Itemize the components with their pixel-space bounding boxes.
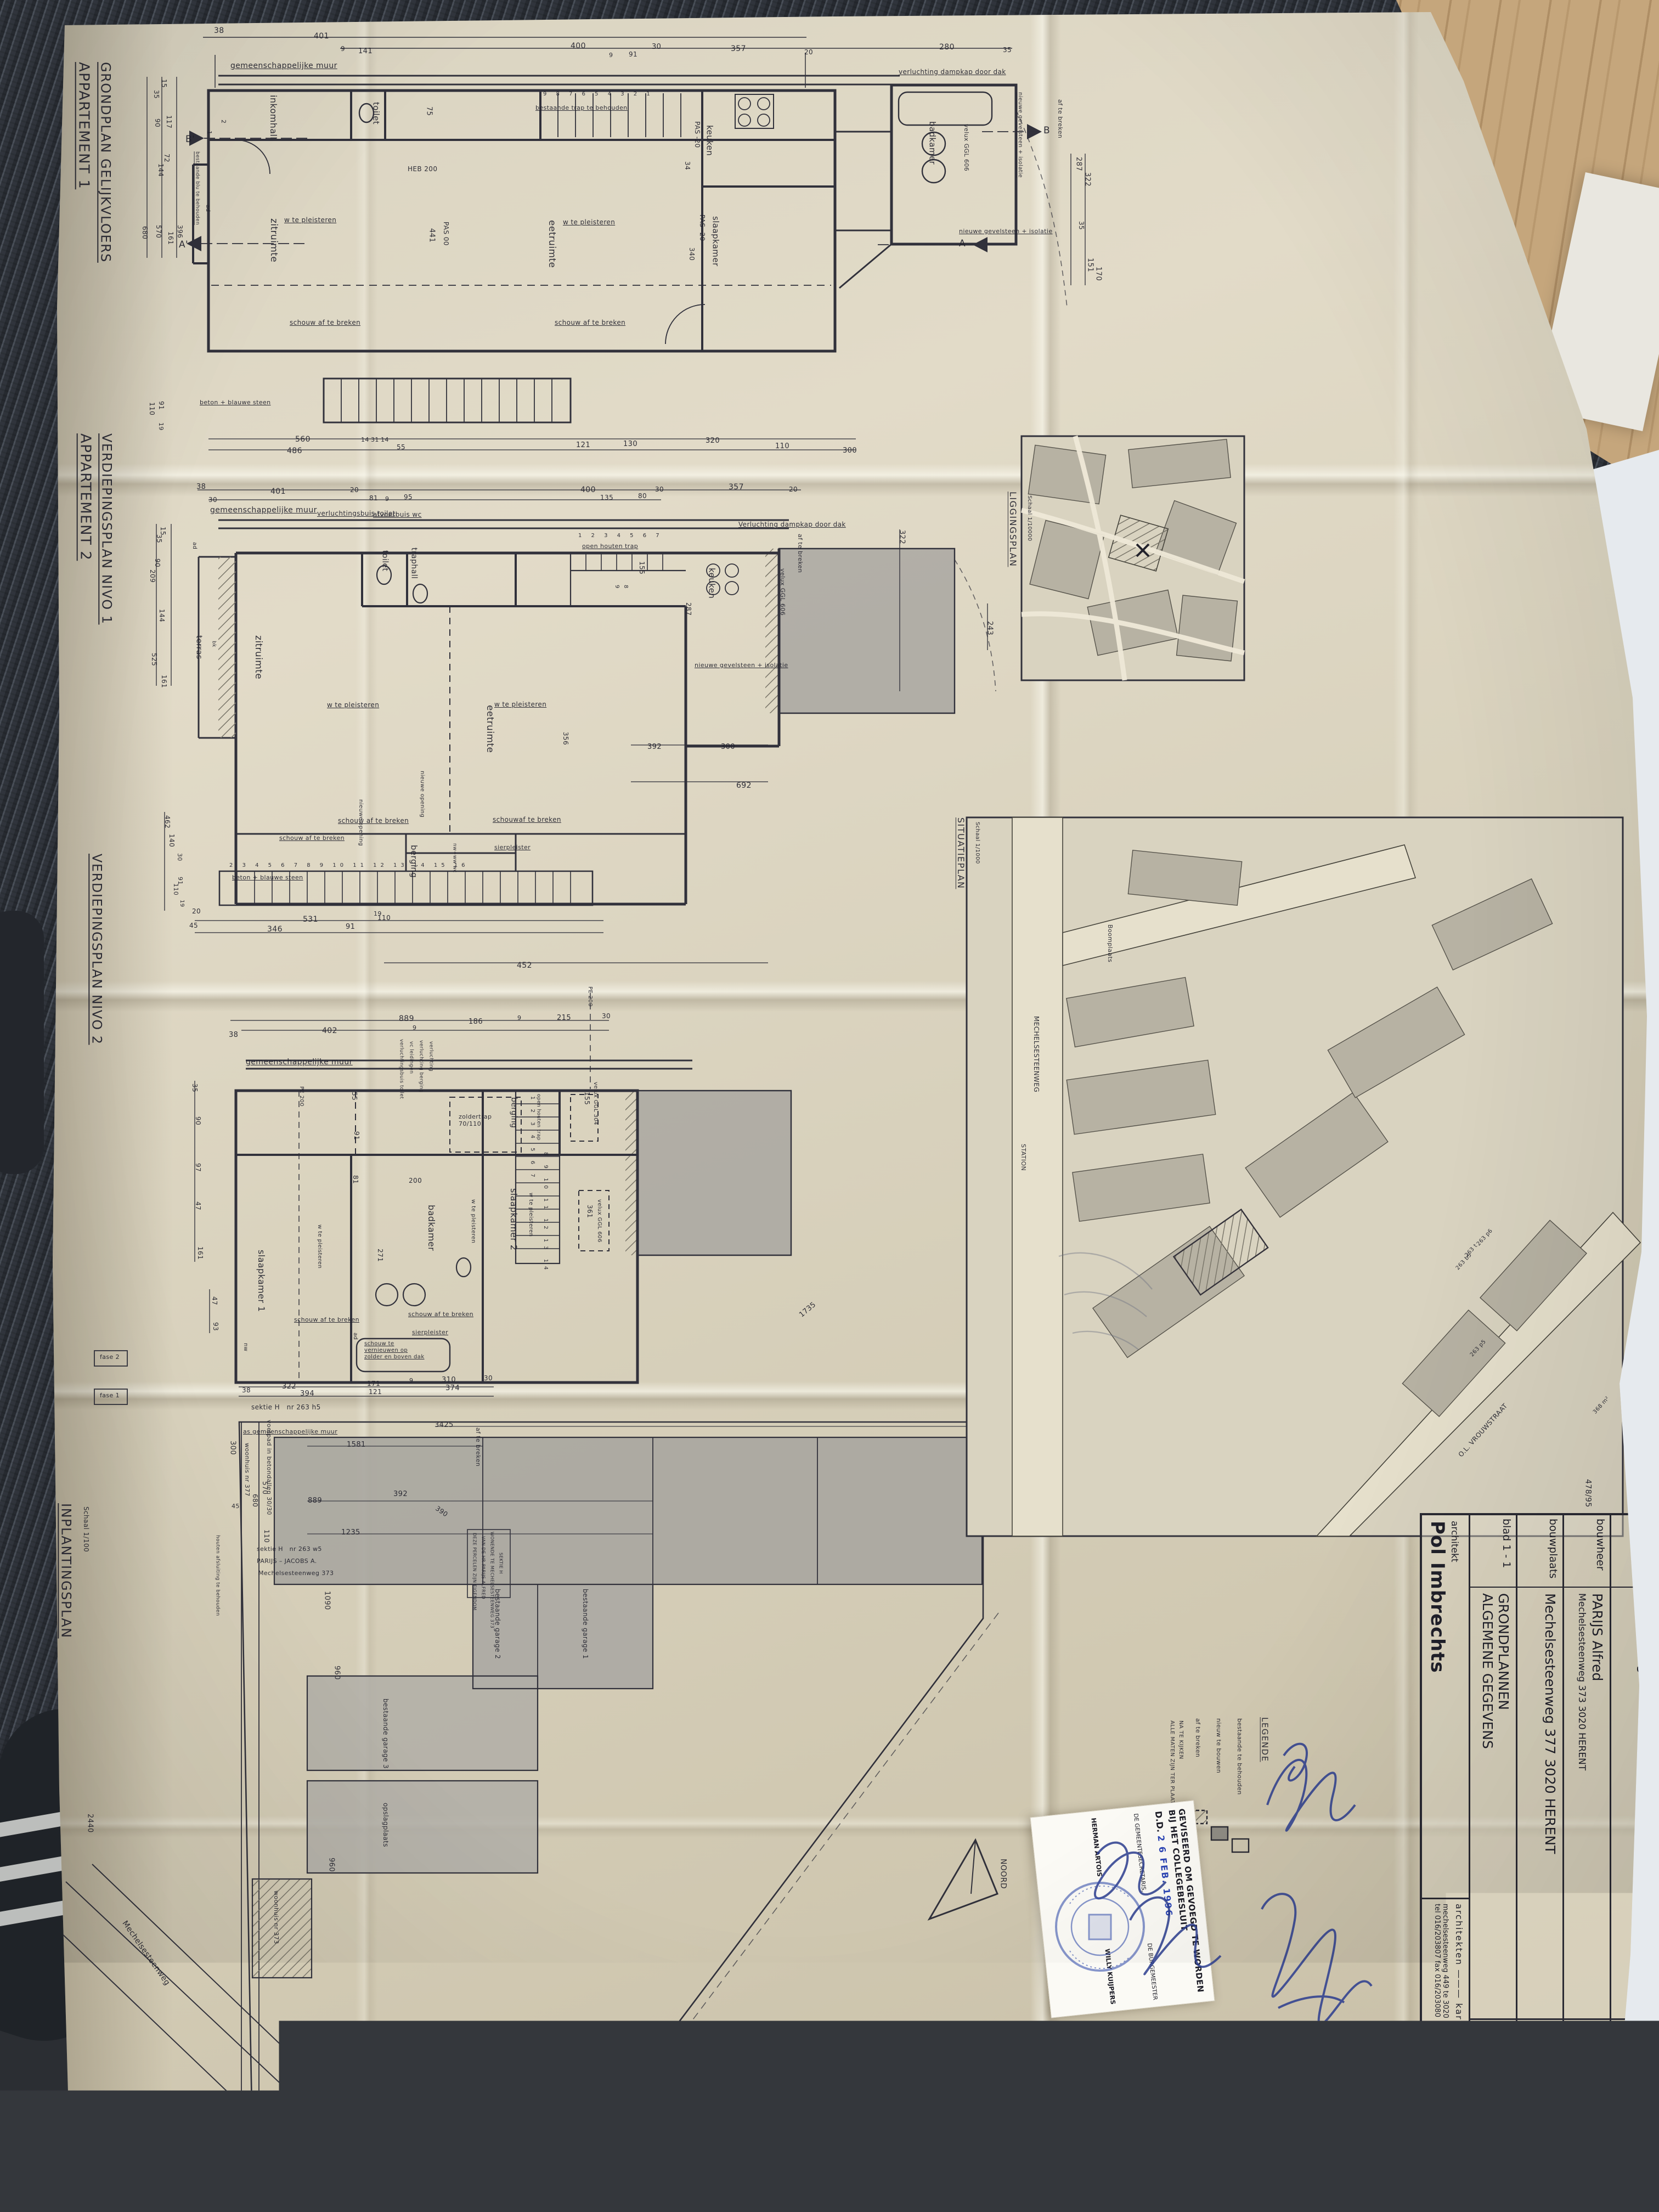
label-wtp1: w te pleisteren	[327, 701, 379, 709]
label-d680: 680	[251, 1494, 259, 1507]
label-wtp2: w te pleisteren	[494, 701, 546, 708]
label-nd2: VAN DE HR PARIJS ALFRED	[481, 1536, 486, 1599]
label-inkomhall: inkomhall	[268, 95, 278, 139]
label-l35: 35	[155, 534, 163, 543]
field-label: bouwheer	[1565, 1515, 1610, 1588]
label-b110: 110	[775, 442, 789, 450]
label-l140: 140	[168, 834, 176, 847]
label-mB1: B'	[185, 134, 195, 145]
stamp-name-kuijpers: WILLY KUIJPERS	[1103, 1948, 1117, 2005]
label-l90: 90	[154, 558, 161, 567]
label-t357: 357	[731, 44, 746, 54]
label-b30: 30	[484, 1374, 493, 1382]
label-l525: 525	[150, 653, 158, 666]
label-b121: 121	[576, 441, 590, 449]
stamp-dd: D.D.	[1153, 1810, 1166, 1832]
label-t357: 357	[729, 483, 744, 492]
label-berging: berging	[509, 1097, 518, 1128]
label-l680: 680	[141, 226, 149, 239]
label-t9a: 9	[385, 496, 389, 503]
label-slaapkamer: slaapkamer	[710, 216, 720, 267]
label-t30b: 30	[655, 486, 664, 493]
bouwheer-name: PARIJS Alfred	[1589, 1593, 1605, 2013]
label-d361: 361	[586, 1205, 594, 1218]
label-t186: 186	[469, 1018, 483, 1026]
brand-karro: karro	[1454, 2003, 1464, 2031]
architect-cell: architekt Pol Imbrechts	[1422, 1515, 1469, 1899]
label-schouw3: schouw af te breken	[279, 835, 345, 842]
label-woon373: woonhuis nr 373	[272, 1891, 279, 1944]
stamp-name-artois: HERMAN ARTOIS	[1090, 1818, 1103, 1877]
label-d1235: 1235	[341, 1528, 360, 1537]
titleblock-row-architekt: architekt Pol Imbrechts architekten ——— …	[1422, 1515, 1469, 2193]
label-d271: 271	[376, 1249, 384, 1262]
label-wtp3: w te pleisteren	[527, 1193, 534, 1237]
label-woon377: woonhuis nr 377	[243, 1443, 250, 1497]
label-scale: Schaal 1/100	[82, 1506, 90, 1552]
label-t9b: 9	[609, 52, 613, 59]
label-aft: af te breken	[796, 534, 803, 573]
label-d287: 287	[685, 602, 692, 616]
label-n1: 1	[205, 131, 212, 134]
label-i2: nieuw te bouwen	[1215, 1718, 1222, 1773]
label-badkamer: badkamer	[927, 121, 937, 165]
architect-office: architekten ——— karro ——— mechelsesteenw…	[1422, 1899, 1469, 2193]
label-pe1: PE 200	[586, 986, 593, 1007]
label-b9: 9	[409, 1378, 413, 1385]
label-s9: 9	[613, 585, 620, 589]
field-value: GRONDPLANNENALGEMENE GEGEVENS	[1470, 1588, 1516, 2020]
label-l462: 462	[163, 815, 171, 828]
field-label: bouwplaats	[1517, 1515, 1563, 1588]
label-ops: opslagplaats	[382, 1803, 390, 1847]
label-vbt: verluchtingsbuis toilet	[398, 1039, 404, 1099]
label-t401: 401	[270, 487, 286, 496]
label-note1: ALLE MATEN ZIJN TER PLAATSE	[1169, 1720, 1175, 1812]
label-title: LIGGINGSPLAN	[1007, 492, 1018, 567]
label-sektieh5: sektie H nr 263 h5	[251, 1403, 321, 1411]
label-t80: 80	[638, 492, 647, 500]
label-l161: 161	[167, 232, 174, 245]
brand-architekten: architekten	[1454, 1904, 1464, 1966]
label-avw: afvoerbuis wc	[373, 511, 422, 518]
label-b130: 130	[623, 440, 637, 448]
label-t20: 20	[804, 48, 813, 56]
stamp-burgemeester-label: DE BURGEMEESTER	[1146, 1943, 1159, 2000]
label-d45: 45	[232, 1503, 240, 1510]
label-bestblu: bestaande blu te behouden	[194, 151, 200, 225]
label-t215: 215	[557, 1014, 571, 1022]
label-t141: 141	[358, 47, 373, 55]
tekenaar-value: PETER	[1547, 2078, 1559, 2113]
label-schouw2: schouwaf te breken	[493, 816, 561, 823]
label-mB2: B	[1043, 125, 1050, 136]
label-beton: beton + blauwe steen	[200, 399, 271, 407]
label-t95: 95	[404, 493, 413, 501]
label-d110: 110	[263, 1530, 270, 1543]
label-d34: 34	[684, 161, 691, 170]
label-l19: 19	[157, 422, 164, 431]
label-l35: 35	[191, 1084, 199, 1092]
label-t401: 401	[314, 32, 329, 41]
label-l93: 93	[212, 1322, 219, 1331]
label-verlucht: verluchting dampkap door dak	[899, 68, 1006, 76]
label-l117: 117	[165, 115, 173, 128]
label-mA2: A	[959, 238, 966, 249]
office-address: mechelsesteenweg 449 te 3020 Herent	[1441, 1904, 1449, 2189]
label-verlucht: Verluchting dampkap door dak	[738, 521, 846, 528]
label-d200: 200	[409, 1177, 422, 1184]
label-l396: 396	[176, 225, 184, 238]
label-b31: 31	[371, 437, 379, 444]
label-schouw1: schouw af te breken	[294, 1317, 359, 1324]
label-pj: PARIJS – JACOBS A.	[257, 1558, 317, 1565]
label-s814: 8 9 10 11 12 13 14	[542, 1152, 549, 1273]
label-n2: 2	[219, 120, 227, 123]
label-t9a: 9	[413, 1025, 416, 1032]
label-zold: zoldertrap 70/110	[459, 1114, 497, 1128]
label-b300: 300	[843, 447, 857, 455]
label-b110: 110	[377, 914, 391, 922]
label-ad: ad	[191, 542, 198, 549]
label-b91: 91	[346, 923, 355, 931]
label-noord: NOORD	[998, 1859, 1008, 1889]
nivo2-drawing	[195, 993, 791, 1396]
label-eetruimte: eetruimte	[484, 705, 495, 753]
label-svern: schouw te vernieuwen op zolder en boven …	[364, 1341, 425, 1360]
stamp-secretaris-label: DE GEMEENTESECRETARIS,	[1132, 1813, 1147, 1892]
label-l47: 47	[194, 1201, 202, 1210]
label-wtp1: w te pleisteren	[316, 1224, 323, 1268]
titleblock-row-blad: blad 1 - 1 GRONDPLANNENALGEMENE GEGEVENS…	[1469, 1515, 1516, 2193]
label-title: INPLANTINGSPLAN	[58, 1503, 74, 1639]
label-l161: 161	[160, 675, 168, 688]
label-muur: gemeenschappelijke muur	[246, 1058, 353, 1067]
label-s17: 1 2 3 4 5 6 7	[578, 533, 663, 539]
label-t280: 280	[939, 43, 955, 52]
label-pencil: 478/95	[1583, 1479, 1593, 1508]
label-b55: 55	[397, 443, 405, 451]
label-nop1: nieuwe opening	[419, 771, 425, 817]
label-t30: 30	[602, 1012, 611, 1020]
label-traphall: traphall	[409, 548, 419, 579]
label-s8: 8	[622, 585, 629, 589]
label-l91: 91	[157, 401, 165, 410]
label-d960a: 960	[332, 1666, 341, 1680]
label-pe2: PE 200	[298, 1086, 304, 1107]
label-schouw2: schouw af te breken	[555, 319, 625, 326]
label-b14b: 14	[381, 437, 389, 444]
label-title: LEGENDE	[1260, 1717, 1269, 1762]
label-t9b: 9	[517, 1015, 521, 1022]
label-t30: 30	[652, 43, 661, 51]
label-t400: 400	[571, 42, 586, 51]
label-b322: 322	[282, 1383, 296, 1391]
nivo1-drawing	[156, 490, 996, 963]
label-b310: 310	[442, 1376, 456, 1384]
label-terras: terras	[194, 635, 204, 659]
datum-label: datum	[1500, 2024, 1511, 2056]
label-l144: 144	[157, 163, 165, 177]
label-muur: gemeenschappelijke muur	[210, 506, 317, 515]
bouwplaats-value: Mechelsesteenweg 377 3020 HERENT	[1517, 1588, 1563, 2020]
label-l15: 15	[160, 79, 168, 88]
label-d441: 441	[427, 228, 436, 242]
label-title: SITUATIEPLAN	[955, 817, 966, 889]
label-r243: 243	[985, 621, 994, 635]
field-value: PARIJS AlfredMechelsesteenweg 373 3020 H…	[1565, 1588, 1610, 2020]
label-l97: 97	[194, 1163, 202, 1172]
label-v606: velux GGL 606	[596, 1199, 602, 1243]
label-houten: houten afsluiting te behouden	[215, 1535, 221, 1616]
label-t889: 889	[399, 1014, 414, 1024]
label-t81: 81	[369, 494, 378, 502]
label-d3425: 3425	[435, 1421, 454, 1429]
label-b38: 38	[242, 1386, 251, 1394]
label-b346: 346	[267, 925, 283, 934]
label-r170: 170	[1094, 267, 1102, 281]
titleblock-row-bouwplaats: bouwplaats Mechelsesteenweg 377 3020 HER…	[1516, 1515, 1563, 2193]
label-aft: af te breken	[474, 1427, 481, 1466]
label-wtp2: w te pleisteren	[470, 1199, 476, 1243]
label-aft: af te breken	[1056, 99, 1063, 138]
photo-scene: APPARTEMENT 1GRONDPLAN GELIJKVLOERSgemee…	[0, 0, 1659, 2212]
label-eetruimte: eetruimte	[546, 220, 557, 268]
label-ad: ad	[352, 1333, 358, 1340]
label-scale: Schaal 1/1000	[974, 822, 980, 864]
label-b452: 452	[517, 961, 532, 970]
label-b394: 394	[300, 1390, 314, 1398]
label-fase1: fase 1	[100, 1392, 120, 1400]
label-mA1: A'	[179, 239, 188, 250]
label-t400: 400	[580, 486, 596, 495]
label-vcl: vc leidingen	[408, 1041, 414, 1074]
label-opentrap: open houten trap	[582, 543, 638, 550]
label-b45: 45	[189, 922, 198, 929]
label-t38: 38	[229, 1031, 238, 1039]
bouwheer-address: Mechelsesteenweg 373 3020 HERENT	[1576, 1593, 1587, 2013]
label-g2: bestaande garage 2	[494, 1589, 501, 1659]
label-m373: Mechelsesteenweg 373	[258, 1570, 334, 1577]
label-r287: 287	[1074, 157, 1082, 171]
plan-linework	[0, 0, 1659, 2212]
label-nw: nw	[242, 1343, 249, 1351]
legend-swatches	[1190, 1810, 1249, 1852]
label-l91: 91	[353, 1131, 360, 1140]
label-berging: berging	[409, 845, 419, 878]
label-asmuur: as gemeenschappelijke muur	[243, 1429, 337, 1436]
label-ngi1: nieuwe gevelsteen + isolatie	[1017, 92, 1023, 178]
office-phone: tel 016/203807 fax 016/203080	[1433, 1904, 1441, 2189]
label-title2: VERDIEPINGSPLAN NIVO 1	[99, 433, 114, 625]
label-sier: sierpleister	[494, 844, 531, 851]
label-d1090: 1090	[323, 1591, 331, 1610]
label-keuken: keuken	[704, 125, 714, 156]
label-zitruimte: zitruimte	[268, 218, 279, 262]
label-r322: 322	[898, 530, 906, 544]
field-label: blad 1 - 1	[1470, 1515, 1516, 1588]
label-l19: 19	[178, 900, 185, 907]
label-muur: gemeenschappelijke muur	[230, 61, 337, 71]
blad-subtitle: ALGEMENE GEGEVENS	[1480, 1593, 1496, 2013]
label-l35: 35	[153, 90, 160, 99]
label-ngi: nieuwe gevelsteen + isolatie	[695, 662, 788, 669]
label-velux: velux GGL 606	[778, 568, 786, 616]
label-i3: af te breken	[1194, 1718, 1201, 1757]
label-d889: 889	[308, 1497, 322, 1505]
label-b531: 531	[303, 915, 318, 924]
label-ngi2: nieuwe gevelsteen + isolatie	[959, 228, 1053, 235]
blad-title: GRONDPLANNEN	[1496, 1593, 1511, 2013]
label-title1: VERDIEPINGSPLAN NIVO 2	[89, 854, 104, 1045]
label-d155: 155	[638, 561, 646, 574]
label-d392: 392	[393, 1490, 408, 1498]
label-title1: APPARTEMENT 1	[75, 62, 92, 189]
label-l47b: 47	[211, 1296, 218, 1305]
label-l30: 30	[176, 853, 183, 861]
label-keuken: keuken	[707, 568, 716, 599]
architect-label: architekt	[1449, 1521, 1460, 1562]
label-l81: 81	[352, 1175, 359, 1184]
label-t402: 402	[322, 1026, 337, 1036]
label-l209: 209	[149, 569, 156, 583]
blueprint-sheet: APPARTEMENT 1GRONDPLAN GELIJKVLOERSgemee…	[0, 0, 1659, 2212]
label-b392: 392	[647, 743, 662, 751]
label-l144: 144	[158, 609, 166, 622]
label-r35: 35	[1077, 221, 1085, 230]
label-zitruimte: zitruimte	[253, 635, 264, 679]
label-b300: 300	[721, 743, 735, 751]
label-slaap2: slaapkamer 2	[508, 1188, 518, 1250]
label-boom: Boomplaats	[1106, 924, 1113, 962]
label-slaap1: slaapkamer 1	[256, 1250, 266, 1312]
label-b14a: 14	[361, 437, 369, 444]
label-s17: 1 2 3 4 5 6 7	[529, 1096, 535, 1181]
label-verl: verluchting	[428, 1041, 434, 1071]
label-nd4: SEKTIE H	[498, 1553, 503, 1574]
architect-name: Pol Imbrechts	[1426, 1521, 1448, 1673]
titleblock-row-bouwheer: bouwheer PARIJS AlfredMechelsesteenweg 3…	[1563, 1515, 1610, 2193]
label-d356: 356	[562, 732, 569, 745]
label-r322: 322	[1083, 172, 1091, 187]
label-b6: sektie H nr 263 b6	[234, 2177, 296, 2184]
liggingsplan-map	[1022, 436, 1244, 680]
label-b374: 374	[445, 1384, 460, 1392]
label-toilet: toilet	[380, 550, 390, 571]
tekenaar-label: tekenaar	[1547, 2024, 1559, 2068]
label-vbg: verluchting berging	[418, 1040, 424, 1093]
inplanting-drawing	[35, 1351, 998, 2212]
label-sw5: sektie H nr 263 w5	[257, 1546, 322, 1553]
label-l110: 110	[148, 402, 156, 415]
datum-value: 10/01/1994	[1500, 2066, 1511, 2128]
label-nd1: DEZE PERCELEN ZIJN EIGENDOM	[472, 1533, 477, 1611]
shoe	[0, 911, 44, 1174]
label-g1: bestaande garage 1	[582, 1589, 589, 1659]
label-pas20a: PAS -20	[693, 121, 701, 148]
approval-sticker: GEVISEERD OM GEVOEGD TE WORDEN BIJ HET C…	[1030, 1800, 1215, 2018]
label-b320: 320	[706, 437, 720, 445]
label-l55: 55	[351, 1092, 358, 1101]
label-r151: 151	[1086, 258, 1094, 272]
label-t38: 38	[214, 26, 224, 36]
label-d960b: 960	[327, 1858, 335, 1872]
label-l570: 570	[155, 225, 162, 238]
label-b171: 171	[367, 1380, 380, 1387]
label-v304: velux GGL 304	[592, 1082, 599, 1125]
label-b560: 560	[295, 435, 311, 444]
label-d2440: 2440	[86, 1814, 94, 1833]
label-schouw1: schouw af te breken	[290, 319, 360, 326]
label-wtp2: w te pleisteren	[563, 218, 615, 226]
label-l110: 110	[172, 883, 179, 895]
label-nop2: nieuwe opening	[357, 799, 364, 846]
label-d1581: 1581	[347, 1441, 366, 1449]
label-pas20b: PAS -20	[698, 215, 706, 241]
label-t135: 135	[600, 494, 613, 501]
label-d155: 155	[583, 1092, 591, 1105]
label-t35: 35	[1003, 46, 1012, 54]
label-bk: bk	[211, 641, 217, 647]
label-g3: bestaande garage 3	[382, 1699, 390, 1769]
label-t20b: 20	[789, 486, 798, 493]
label-t30a: 30	[208, 496, 217, 504]
label-velux: velux GGL 606	[962, 124, 969, 171]
situatieplan-map	[967, 817, 1640, 1536]
label-title2: GRONDPLAN GELIJKVLOERS	[98, 62, 113, 263]
label-stairdigits: 9 8 7 6 5 4 3 2 1	[543, 91, 654, 98]
ap1-drawing	[147, 37, 1085, 450]
label-trapnote: bestaande trap te behouden	[535, 105, 628, 112]
label-badkamer: badkamer	[426, 1205, 436, 1251]
label-d75: 75	[425, 106, 433, 116]
label-scale: Schaal 1/10000	[1026, 495, 1032, 541]
label-b486: 486	[287, 447, 302, 456]
label-beton: beton + blauwe steen	[232, 874, 303, 882]
label-b20: 20	[192, 907, 201, 915]
label-wtp1: w te pleisteren	[284, 216, 336, 224]
label-t9a: 9	[341, 45, 345, 53]
label-fase2: fase 2	[100, 1354, 120, 1361]
label-d300: 300	[228, 1441, 236, 1455]
label-pas00: PAS 00	[442, 222, 450, 246]
label-d340: 340	[688, 247, 696, 261]
label-l72: 72	[163, 154, 171, 162]
label-sier: sierpleister	[412, 1329, 448, 1336]
label-l161: 161	[196, 1246, 204, 1260]
label-mech: MECHELSESTEENWEG	[1032, 1016, 1040, 1092]
label-s216: 2 3 4 5 6 7 8 9 10 11 12 13 14 15 16	[229, 862, 469, 869]
label-t20a: 20	[350, 486, 359, 494]
label-l90: 90	[154, 119, 161, 127]
label-schouw2: schouw af te breken	[408, 1311, 473, 1318]
label-opentrap: open houten trap	[535, 1094, 541, 1141]
label-ad: ad	[204, 205, 211, 212]
label-d570: 570	[261, 1481, 269, 1494]
label-heb: HEB 200	[408, 165, 437, 173]
label-b692: 692	[736, 781, 752, 791]
label-schouw1: schouw af te breken	[338, 817, 409, 825]
label-toilet: toilet	[371, 102, 381, 125]
label-station: STATION	[1019, 1144, 1026, 1171]
label-t38: 38	[196, 483, 206, 491]
label-b121: 121	[369, 1388, 382, 1396]
label-t91: 91	[629, 50, 637, 58]
label-l90: 90	[194, 1116, 202, 1125]
label-note2: NA TE KIJKEN	[1177, 1720, 1184, 1759]
label-title1: APPARTEMENT 2	[77, 433, 94, 561]
label-i1: bestaande te behouden	[1235, 1718, 1243, 1795]
